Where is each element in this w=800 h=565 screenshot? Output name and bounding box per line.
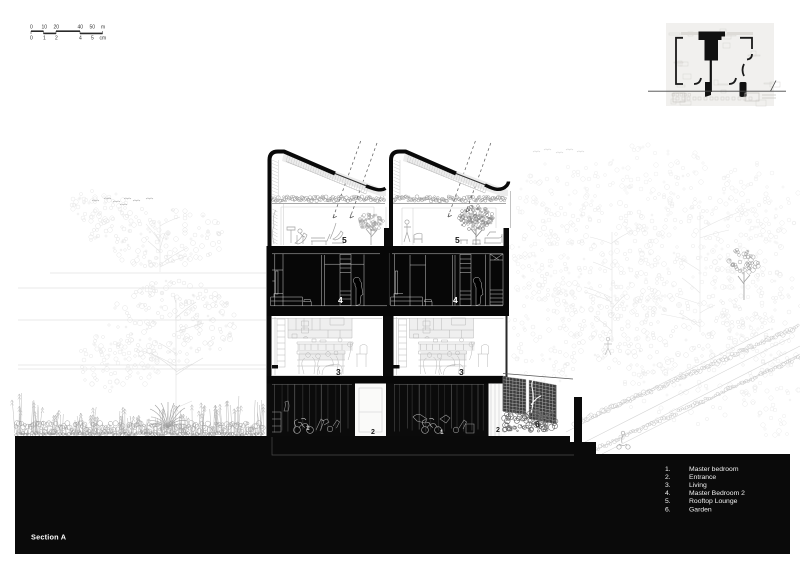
svg-text:Living: Living — [689, 482, 707, 489]
svg-text:2.: 2. — [665, 474, 671, 481]
svg-text:0: 0 — [30, 25, 33, 31]
svg-text:1: 1 — [306, 425, 310, 432]
svg-text:6.: 6. — [665, 506, 671, 513]
svg-text:Garden: Garden — [689, 506, 712, 513]
svg-text:6: 6 — [535, 419, 540, 429]
svg-text:2: 2 — [371, 429, 375, 436]
svg-text:20: 20 — [54, 25, 60, 31]
svg-text:4: 4 — [79, 36, 82, 42]
svg-text:5: 5 — [455, 235, 460, 245]
svg-text:1: 1 — [43, 36, 46, 42]
svg-text:4: 4 — [453, 295, 458, 305]
svg-text:0: 0 — [30, 36, 33, 42]
svg-text:4: 4 — [338, 295, 343, 305]
svg-text:Rooftop Lounge: Rooftop Lounge — [689, 498, 738, 505]
svg-text:40: 40 — [78, 25, 84, 31]
svg-text:3.: 3. — [665, 482, 671, 489]
svg-text:Master Bedroom 2: Master Bedroom 2 — [689, 490, 745, 497]
svg-text:5: 5 — [91, 36, 94, 42]
svg-text:Entrance: Entrance — [689, 474, 716, 481]
svg-text:2: 2 — [496, 427, 500, 434]
svg-text:3: 3 — [336, 367, 341, 377]
svg-text:10: 10 — [42, 25, 48, 31]
svg-text:1: 1 — [440, 429, 444, 436]
svg-text:5: 5 — [342, 235, 347, 245]
svg-text:3: 3 — [459, 367, 464, 377]
svg-text:Section A: Section A — [31, 533, 67, 542]
svg-text:1.: 1. — [665, 466, 671, 473]
svg-text:50: 50 — [90, 25, 96, 31]
svg-text:m: m — [101, 25, 105, 31]
svg-text:2: 2 — [55, 36, 58, 42]
svg-text:5.: 5. — [665, 498, 671, 505]
svg-text:cm: cm — [100, 36, 107, 42]
svg-text:4.: 4. — [665, 490, 671, 497]
svg-text:Master bedroom: Master bedroom — [689, 466, 739, 473]
